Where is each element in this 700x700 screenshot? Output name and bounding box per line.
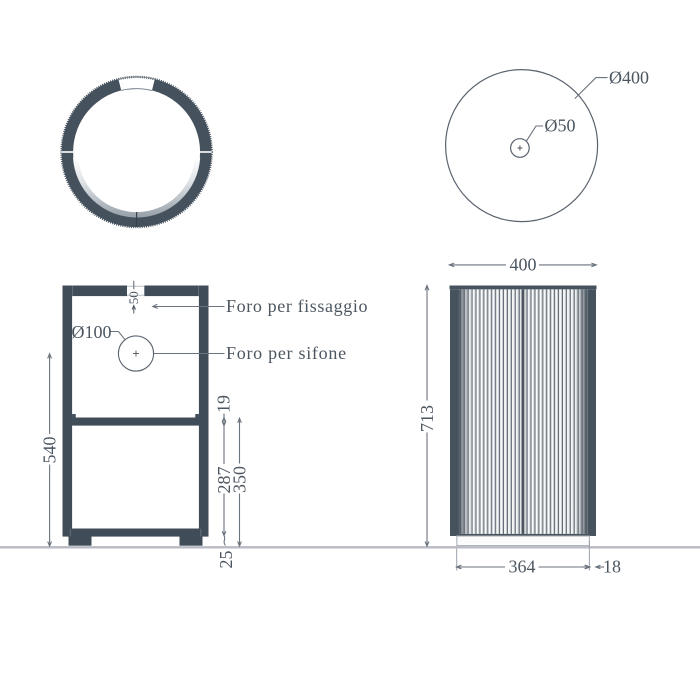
svg-text:19: 19 xyxy=(214,395,234,413)
svg-text:Ø50: Ø50 xyxy=(545,116,576,136)
svg-text:350: 350 xyxy=(230,466,250,493)
svg-text:Foro per fissaggio: Foro per fissaggio xyxy=(226,296,368,316)
svg-text:18: 18 xyxy=(603,557,621,577)
svg-text:25: 25 xyxy=(216,551,236,569)
svg-text:50: 50 xyxy=(126,291,141,304)
svg-text:540: 540 xyxy=(40,437,60,464)
svg-text:Ø400: Ø400 xyxy=(609,68,649,88)
svg-text:Foro per sifone: Foro per sifone xyxy=(226,343,347,363)
svg-text:364: 364 xyxy=(509,557,536,577)
svg-text:713: 713 xyxy=(417,405,437,432)
svg-text:400: 400 xyxy=(510,255,537,275)
svg-text:Ø100: Ø100 xyxy=(72,322,112,342)
